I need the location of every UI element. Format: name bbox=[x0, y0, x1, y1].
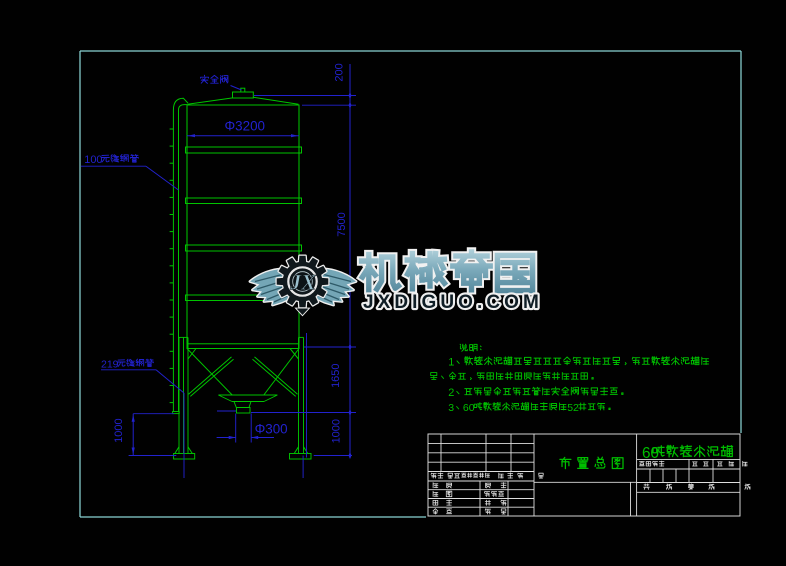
svg-text:Φ300: Φ300 bbox=[255, 421, 288, 436]
svg-text:60: 60 bbox=[463, 402, 475, 414]
svg-text:Φ3200: Φ3200 bbox=[225, 119, 265, 134]
svg-text:100: 100 bbox=[84, 154, 102, 166]
svg-text:1000: 1000 bbox=[113, 418, 125, 442]
svg-text:2: 2 bbox=[448, 387, 454, 399]
svg-text:1000: 1000 bbox=[331, 419, 343, 443]
svg-text:3: 3 bbox=[448, 402, 454, 414]
svg-text:JXDIGUO.COM: JXDIGUO.COM bbox=[363, 292, 540, 313]
svg-text:1650: 1650 bbox=[330, 363, 342, 387]
svg-text:1: 1 bbox=[448, 357, 454, 369]
svg-text:200: 200 bbox=[334, 63, 346, 81]
svg-text:7500: 7500 bbox=[336, 212, 348, 236]
svg-text:219: 219 bbox=[101, 358, 119, 370]
svg-text:52: 52 bbox=[567, 402, 579, 414]
svg-text:JX: JX bbox=[289, 270, 317, 295]
